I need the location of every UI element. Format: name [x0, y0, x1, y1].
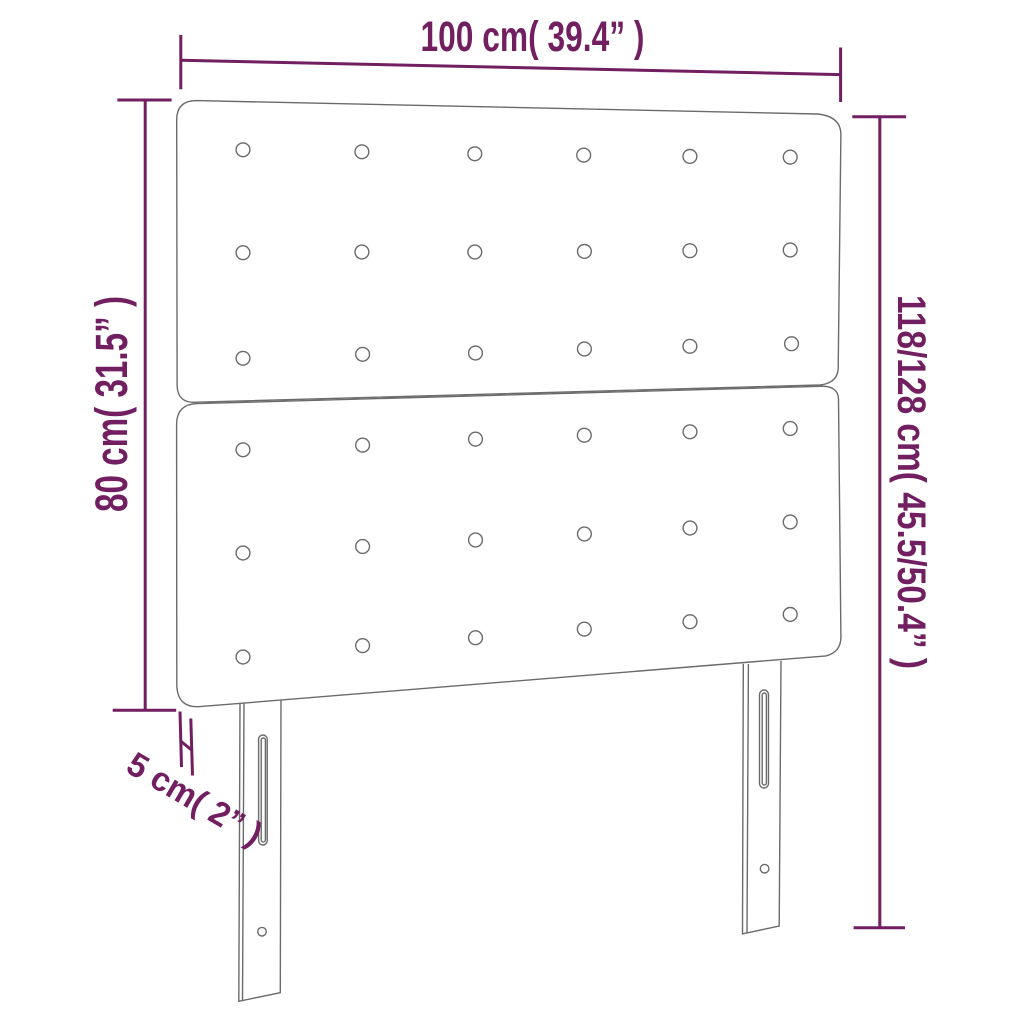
svg-text:5 cm( 2” ): 5 cm( 2” ) — [120, 745, 269, 854]
svg-text:80 cm( 31.5” ): 80 cm( 31.5” ) — [86, 296, 137, 512]
svg-text:100 cm( 39.4” ): 100 cm( 39.4” ) — [421, 13, 645, 61]
svg-text:118/128 cm( 45.5/50.4” ): 118/128 cm( 45.5/50.4” ) — [889, 295, 933, 669]
